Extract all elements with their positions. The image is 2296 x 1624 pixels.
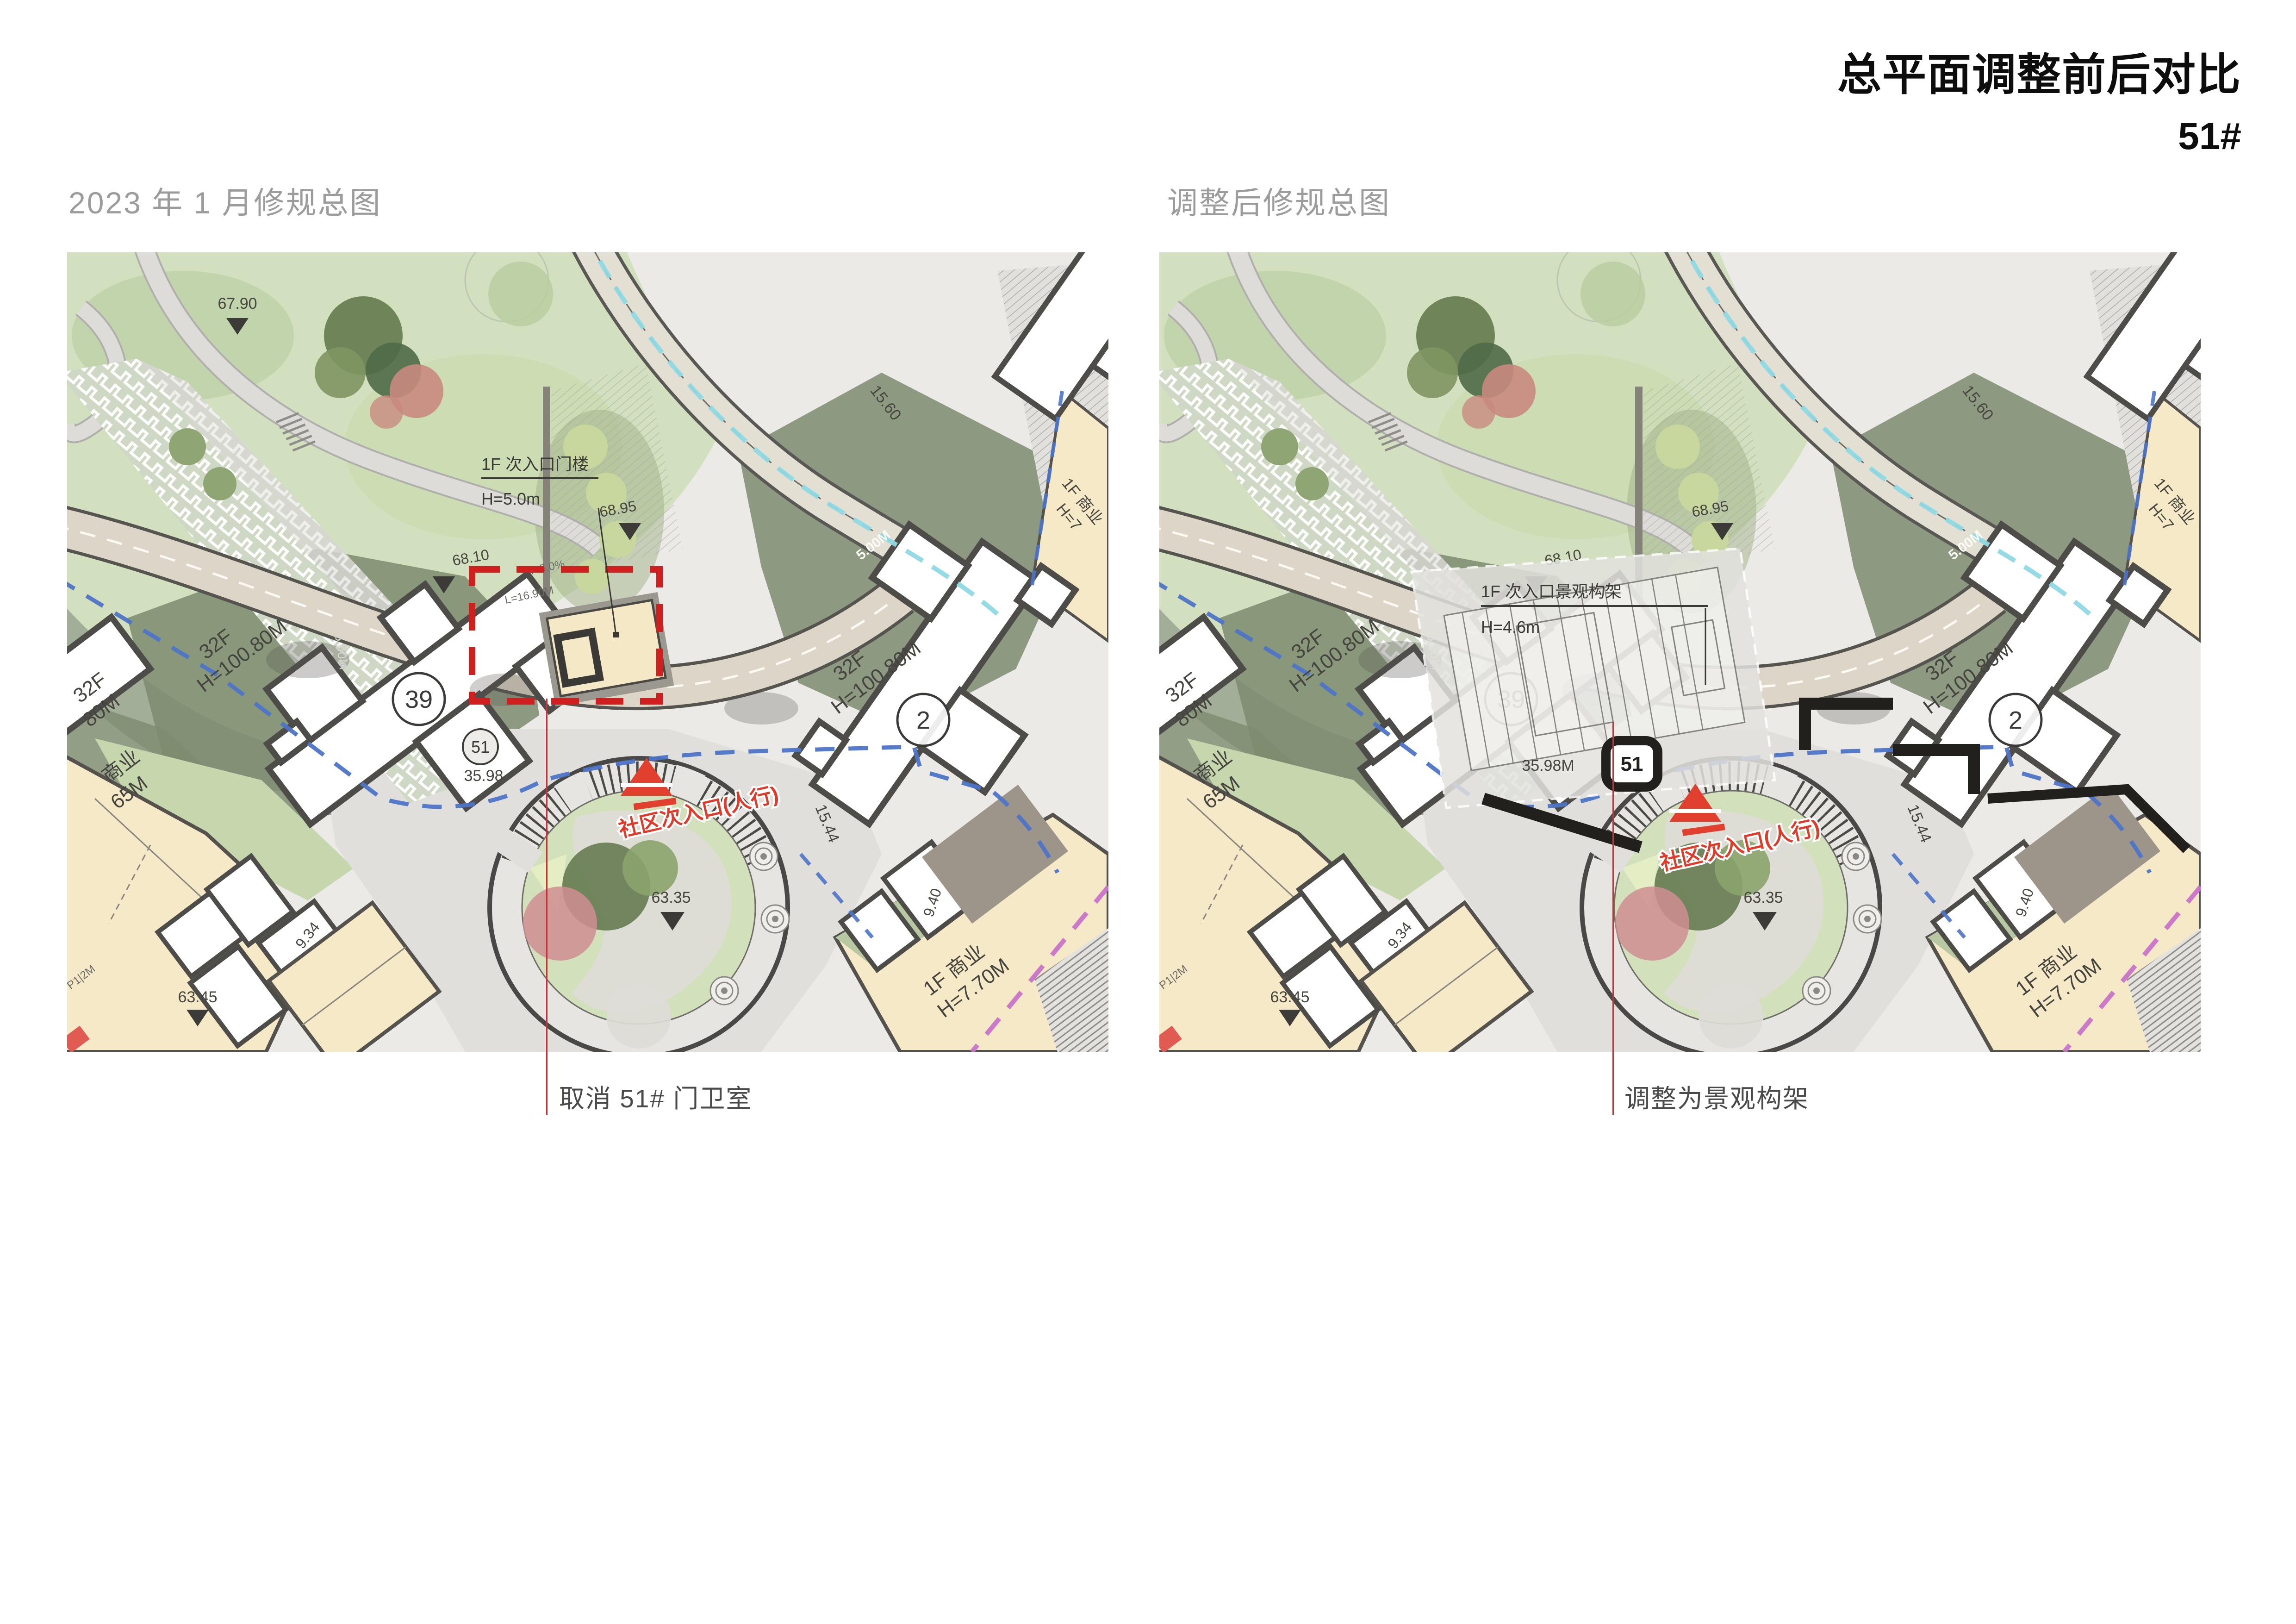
unit-51-badge: 51 — [1621, 753, 1643, 775]
level-35-98m: 35.98M — [1522, 757, 1574, 775]
unit-51-badge: 51 — [471, 737, 490, 756]
gate-height: H=4.6m — [1481, 618, 1540, 637]
annotation-leader-left — [546, 699, 548, 1115]
level-63-35: 63.35 — [1743, 889, 1783, 906]
slide: 总平面调整前后对比 51# 2023 年 1 月修规总图 调整后修规总图 15.… — [0, 0, 2296, 1624]
annotation-right: 调整为景观构架 — [1624, 1078, 1809, 1115]
gate-height: H=5.0m — [481, 489, 540, 508]
gate-label: 1F 次入口景观构架 — [1481, 582, 1622, 601]
site-plan-before: 15.60 5.00M 5.00M 15.44 9.34 9.40 68.95 … — [67, 252, 1108, 1052]
building-2-number: 2 — [2009, 706, 2022, 734]
annotation-left: 取消 51# 门卫室 — [559, 1078, 752, 1115]
level-63-45: 63.45 — [1270, 988, 1309, 1006]
page-subtitle: 51# — [1837, 115, 2241, 158]
level-63-35: 63.35 — [651, 889, 691, 906]
annotation-leader-right — [1612, 722, 1614, 1115]
building-39-number: 39 — [405, 686, 433, 713]
level-63-45: 63.45 — [178, 988, 217, 1006]
caption-right: 调整后修规总图 — [1167, 178, 1391, 223]
level-67-90: 67.90 — [218, 295, 257, 312]
caption-left: 2023 年 1 月修规总图 — [68, 178, 382, 223]
building-2-number: 2 — [916, 706, 930, 734]
level-35-98: 35.98 — [464, 767, 503, 785]
page-title: 总平面调整前后对比 — [1837, 39, 2241, 103]
header: 总平面调整前后对比 51# — [1837, 39, 2241, 158]
gate-label: 1F 次入口门楼 — [481, 455, 589, 474]
site-plan-after: 15.60 5.00M 5.00M 15.44 9.34 9.40 68.95 … — [1159, 252, 2201, 1052]
